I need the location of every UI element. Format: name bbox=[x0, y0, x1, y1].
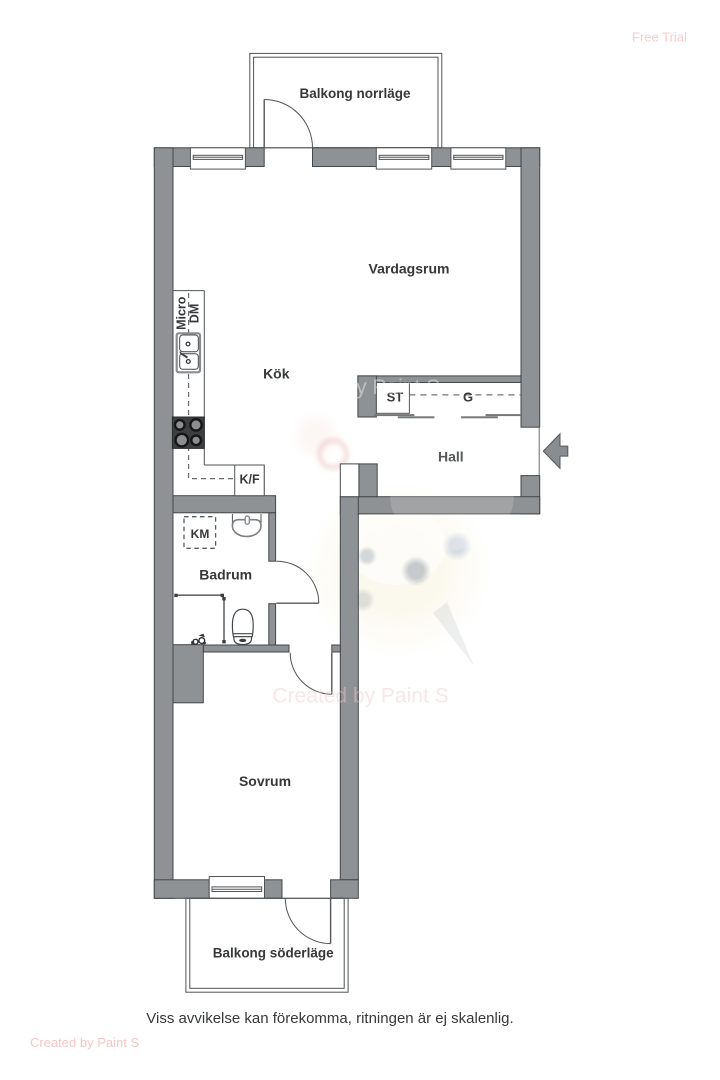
svg-text:Sovrum: Sovrum bbox=[239, 773, 291, 789]
svg-text:K/F: K/F bbox=[240, 473, 261, 487]
svg-text:Vardagsrum: Vardagsrum bbox=[369, 260, 450, 276]
svg-text:Viss avvikelse kan förekomma,: Viss avvikelse kan förekomma, ritningen … bbox=[146, 1010, 513, 1027]
svg-text:DM: DM bbox=[188, 304, 202, 323]
svg-text:Micro: Micro bbox=[175, 296, 189, 330]
svg-text:Created by Paint S: Created by Paint S bbox=[30, 1035, 139, 1050]
svg-text:G: G bbox=[463, 390, 473, 405]
svg-text:Balkong norrläge: Balkong norrläge bbox=[299, 86, 411, 101]
svg-text:Created by Paint S: Created by Paint S bbox=[264, 376, 440, 399]
svg-text:Balkong söderläge: Balkong söderläge bbox=[213, 946, 334, 961]
svg-text:Badrum: Badrum bbox=[199, 566, 252, 582]
svg-text:Free Trial: Free Trial bbox=[632, 29, 687, 44]
svg-text:Created by Paint S: Created by Paint S bbox=[272, 685, 448, 708]
svg-text:KM: KM bbox=[191, 527, 210, 541]
